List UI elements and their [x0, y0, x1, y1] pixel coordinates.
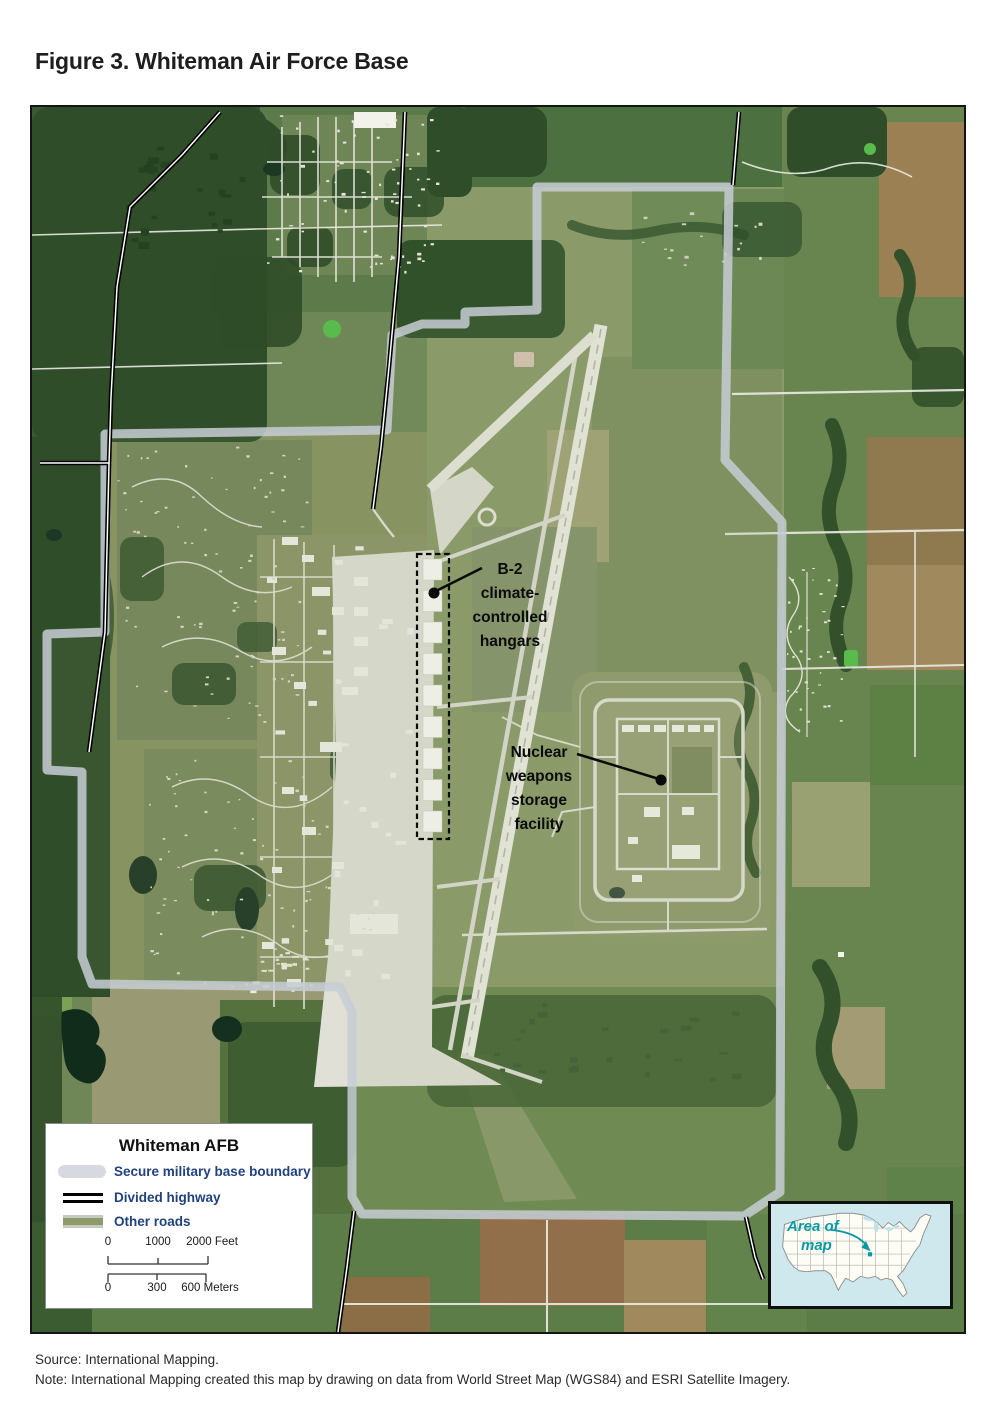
scale-feet-1000: 1000 [145, 1236, 171, 1248]
legend-item-label: Secure military base boundary [114, 1164, 311, 1179]
nuclear-label-line2: weapons [505, 768, 572, 785]
scale-bar [46, 1254, 312, 1288]
legend-item-highway: Divided highway [46, 1190, 312, 1212]
b2-callout-dot [429, 588, 440, 599]
legend-item-label: Divided highway [114, 1190, 221, 1205]
scale-meters-0: 0 [105, 1282, 111, 1294]
inset-locator-map: Area of map [768, 1201, 953, 1309]
inset-label-line2: map [801, 1237, 832, 1254]
inset-label-line1: Area of [787, 1218, 839, 1235]
b2-label-line4: hangars [480, 633, 540, 650]
figure-title: Figure 3. Whiteman Air Force Base [35, 48, 408, 75]
scale-meters-300: 300 [147, 1282, 166, 1294]
divided-highway-swatch [63, 1193, 103, 1203]
b2-label-line2: climate- [481, 585, 540, 602]
legend-item-boundary: Secure military base boundary [46, 1164, 312, 1186]
b2-label-line3: controlled [473, 609, 548, 626]
other-roads-swatch [63, 1215, 103, 1228]
inset-location-marker [868, 1252, 872, 1256]
nuclear-label-line1: Nuclear [511, 744, 568, 761]
legend-title: Whiteman AFB [46, 1136, 312, 1156]
nuclear-label-line3: storage [511, 792, 567, 809]
b2-label-line1: B-2 [498, 561, 523, 578]
boundary-swatch [58, 1165, 106, 1178]
scale-meters-600: 600 Meters [181, 1282, 239, 1294]
method-note: Note: International Mapping created this… [35, 1372, 790, 1387]
legend-item-label: Other roads [114, 1214, 191, 1229]
map-legend: Whiteman AFB Secure military base bounda… [45, 1123, 313, 1309]
scale-feet-2000: 2000 Feet [186, 1236, 238, 1248]
scale-feet-0: 0 [105, 1236, 111, 1248]
nuclear-label-line4: facility [514, 816, 563, 833]
source-note: Source: International Mapping. [35, 1352, 219, 1367]
nuclear-callout-dot [656, 775, 667, 786]
legend-item-roads: Other roads [46, 1214, 312, 1236]
